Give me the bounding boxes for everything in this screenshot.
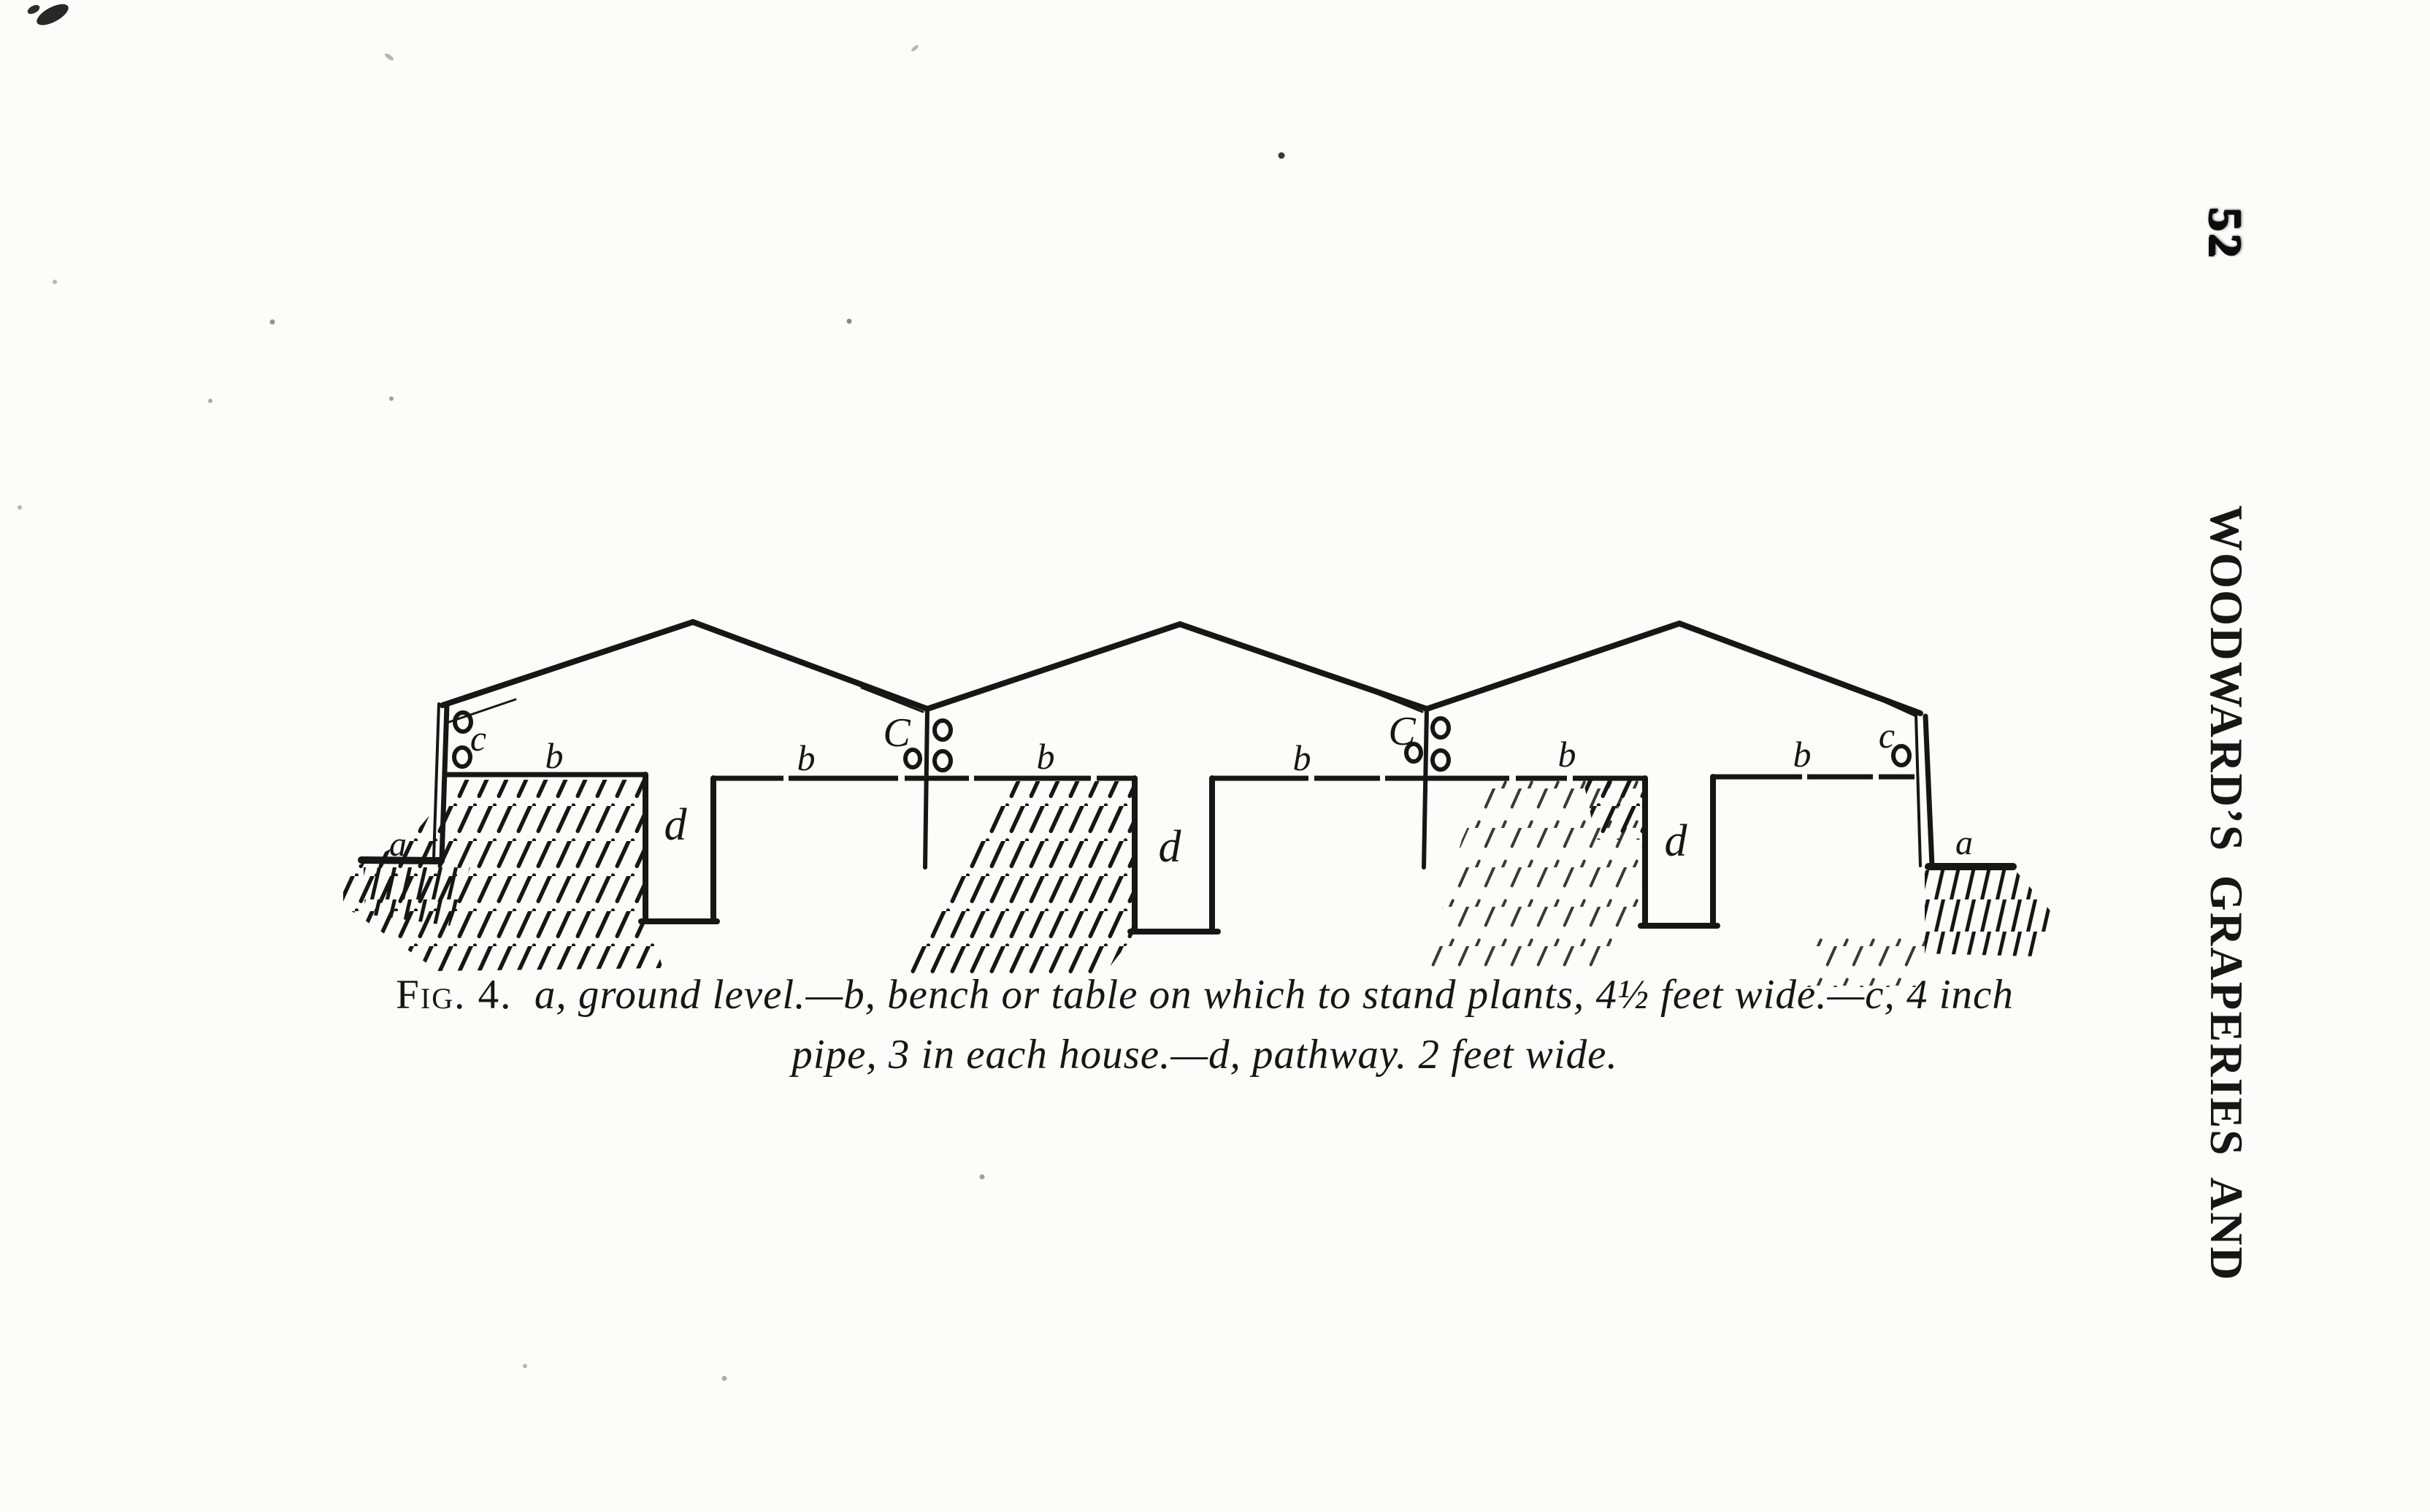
- label-pipe-mid-2: C: [1388, 709, 1416, 754]
- speck: [523, 1364, 527, 1368]
- speck: [53, 280, 57, 284]
- right-post-outer: [1925, 716, 1932, 866]
- roof-slope-1: [442, 622, 927, 709]
- label-pathway-1: d: [664, 800, 688, 850]
- pipe-circle: [935, 721, 951, 740]
- sash-line-2: [862, 688, 923, 712]
- speck: [26, 3, 42, 15]
- speck: [384, 53, 395, 62]
- heating-pipes: [454, 713, 1909, 770]
- label-bench-4: b: [1293, 737, 1311, 778]
- caption-line-1: Fig. 4. a, ground level.—b, bench or tab…: [292, 965, 2117, 1025]
- speck: [389, 396, 394, 401]
- label-pipe-right: c: [1879, 715, 1895, 756]
- caption-text-2: pipe, 3 in each house.—d, pathway. 2 fee…: [792, 1032, 1617, 1078]
- page-number: 52: [2199, 207, 2252, 260]
- roof-lines: [442, 622, 1920, 723]
- sash-line-5: [1430, 673, 1536, 709]
- label-bench-5: b: [1558, 734, 1576, 775]
- greenhouse-section-diagram: a a b b b b b b c C C c d d d: [314, 599, 2096, 997]
- pipe-circle: [1433, 718, 1449, 737]
- figure-number: Fig. 4.: [396, 972, 512, 1018]
- figure-caption: Fig. 4. a, ground level.—b, bench or tab…: [292, 965, 2117, 1085]
- pipe-circle: [1893, 746, 1909, 765]
- bench-lines: [442, 775, 1915, 778]
- speck: [847, 319, 852, 324]
- label-bench-2: b: [797, 737, 816, 778]
- speck: [34, 0, 72, 29]
- soil-hatching: [343, 780, 2053, 987]
- valley-post-2: [1424, 709, 1427, 867]
- right-post-inner: [1916, 715, 1920, 866]
- caption-text-1: a, ground level.—b, bench or table on wh…: [534, 972, 2014, 1018]
- sash-line-6: [1866, 694, 1915, 715]
- label-bench-1: b: [545, 735, 564, 776]
- label-bench-6: b: [1793, 734, 1812, 775]
- label-pathway-2: d: [1159, 822, 1182, 872]
- speck: [980, 1175, 985, 1180]
- speck: [1279, 153, 1285, 159]
- label-ground-left: a: [389, 825, 407, 864]
- speck: [270, 320, 275, 325]
- speck: [208, 399, 212, 403]
- label-ground-right: a: [1955, 824, 1973, 862]
- roof-slope-3: [1427, 623, 1920, 713]
- roof-slope-2: [927, 624, 1427, 709]
- running-head: WOODWARD’S GRAPERIES AND: [2202, 505, 2250, 1281]
- label-pipe-mid-1: C: [883, 710, 911, 756]
- pipe-circle: [935, 751, 951, 770]
- pipe-circle: [454, 748, 470, 767]
- pipe-circle: [455, 713, 471, 732]
- speck: [911, 44, 919, 53]
- hatch-under-ledge-right: [1925, 870, 2053, 956]
- posts: [434, 704, 1932, 867]
- sash-line-3: [930, 672, 1040, 709]
- book-page: a a b b b b b b c C C c d d d Fig. 4. a,…: [0, 0, 2430, 1512]
- valley-post-1: [925, 709, 927, 867]
- speck: [18, 505, 22, 510]
- speck: [722, 1376, 727, 1381]
- label-pathway-3: d: [1665, 816, 1688, 866]
- hatch-bed-2: [904, 781, 1136, 974]
- label-pipe-left: c: [470, 718, 486, 759]
- label-bench-3: b: [1037, 736, 1055, 777]
- caption-line-2: pipe, 3 in each house.—d, pathway. 2 fee…: [292, 1025, 2117, 1085]
- pipe-circle: [1433, 751, 1449, 770]
